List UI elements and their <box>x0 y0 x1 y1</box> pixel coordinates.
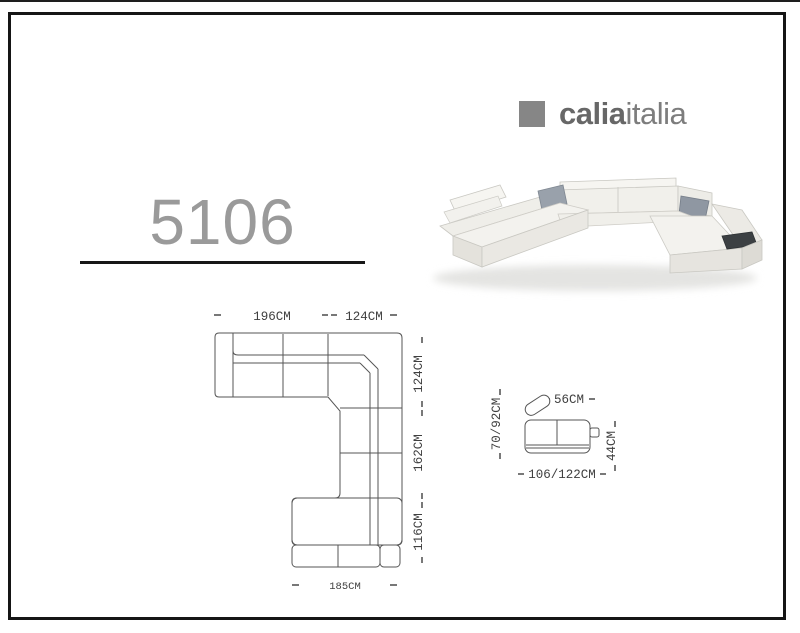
plan-corner-miter1 <box>364 355 378 369</box>
sofa-photo-illustration <box>410 148 790 308</box>
side-headrest <box>523 393 552 418</box>
dim-label-side-height: 70/92CM <box>490 398 504 451</box>
dim-label-right-top: 124CM <box>412 355 426 393</box>
plan-ottoman-strip <box>292 545 380 567</box>
logo-text-bold: calia <box>559 96 625 131</box>
logo-text: caliaitalia <box>559 100 686 128</box>
dim-label-side-seat-height: 44CM <box>605 431 619 461</box>
plan-corner-miter2 <box>360 363 370 373</box>
plan-view-drawing: 196CM 124CM <box>190 293 450 598</box>
plan-ottoman-end <box>380 545 400 567</box>
plan-chaise <box>292 498 402 545</box>
model-number: 5106 <box>80 190 365 254</box>
dim-label-right-middle: 162CM <box>412 434 426 472</box>
side-rear-tab <box>590 428 599 437</box>
dim-label-bottom: 185CM <box>329 581 361 593</box>
dim-label-top-width-left: 196CM <box>253 310 291 324</box>
side-view-svg: 56CM 70/92CM 44CM 106/122CM <box>485 380 630 490</box>
spec-sheet-page: caliaitalia 5106 <box>0 0 800 633</box>
dim-label-top-width-right: 124CM <box>345 310 383 324</box>
plan-view-svg: 196CM 124CM <box>190 293 450 598</box>
logo-text-regular: italia <box>625 96 686 131</box>
side-view-drawing: 56CM 70/92CM 44CM 106/122CM <box>485 380 630 490</box>
logo-square-icon <box>519 101 545 127</box>
brand-logo: caliaitalia <box>519 98 686 128</box>
plan-backrest-line1 <box>233 351 364 355</box>
dim-label-side-depth: 106/122CM <box>528 468 596 482</box>
dim-label-side-width: 56CM <box>554 393 584 407</box>
page-top-edge-line <box>0 0 800 2</box>
dim-label-right-bottom: 116CM <box>412 513 426 551</box>
sofa-photo <box>410 148 790 308</box>
model-underline <box>80 261 365 264</box>
